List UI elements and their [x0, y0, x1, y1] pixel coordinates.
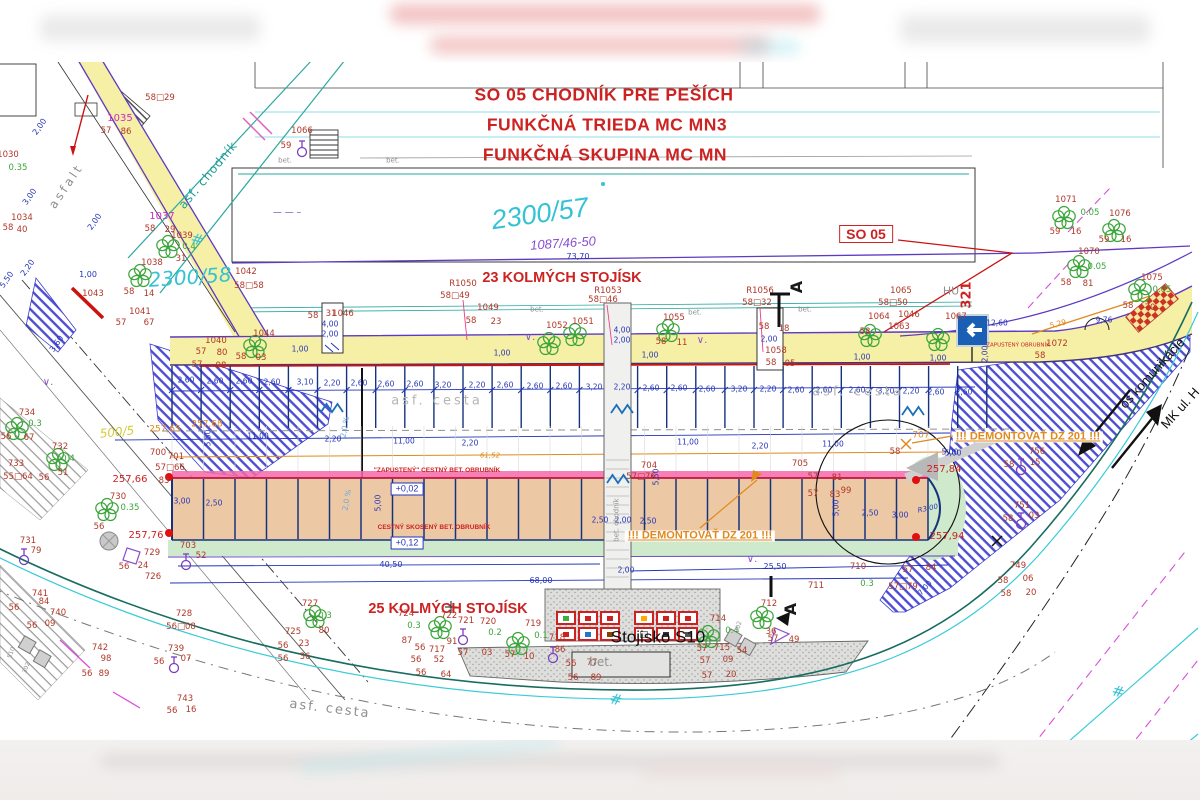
annotation-label: 56	[167, 707, 178, 716]
annotation-label: 11,00	[393, 437, 414, 445]
annotation-label: 81	[832, 474, 843, 483]
annotation-label: 500/5	[99, 424, 135, 440]
annotation-label: 11,00	[247, 432, 268, 440]
annotation-label: 257,68	[191, 421, 223, 430]
curb-note-bottom: CESTNÝ SKOSENÝ BET. OBRUBNÍK	[378, 525, 491, 532]
site-plan-drawing: SO 05 CHODNÍK PRE PEŠÍCH FUNKČNÁ TRIEDA …	[0, 0, 1200, 800]
annotation-label: 56	[82, 670, 93, 679]
annotation-label: 56	[27, 622, 38, 631]
annotation-label: 58	[998, 577, 1009, 586]
annotation-label: 11,00	[822, 440, 843, 448]
annotation-label: 56□08	[166, 623, 196, 632]
annotation-label: 751	[1014, 502, 1030, 511]
annotation-label: 726	[145, 573, 161, 582]
annotation-label: 10	[524, 653, 535, 662]
tree-icon	[751, 607, 773, 629]
annotation-label: 0.05	[1153, 286, 1172, 295]
annotation-label: 58	[1003, 515, 1014, 524]
annotation-label: 86	[555, 646, 566, 655]
level-box-bottom: +0,12	[391, 537, 424, 550]
annotation-label: 720	[480, 618, 496, 627]
annotation-label: 03	[482, 649, 493, 658]
annotation-label: 83	[159, 477, 170, 486]
annotation-label: 61,52	[480, 453, 500, 460]
annotation-label: 58	[308, 312, 319, 321]
annotation-label: 1,00	[292, 345, 309, 353]
annotation-label: 3,20	[586, 383, 603, 391]
annotation-label: 719	[525, 620, 541, 629]
annotation-label: 0.35	[121, 504, 140, 513]
annotation-label: bet.	[688, 310, 702, 317]
lamp-icon	[170, 657, 179, 673]
row-bottom-label: 25 KOLMÝCH STOJÍSK	[368, 602, 527, 617]
annotation-label: 257,65	[149, 426, 181, 435]
annotation-label: 2,20	[469, 381, 486, 389]
annotation-label: 1058	[765, 347, 787, 356]
annotation-label: 2,60	[207, 377, 224, 385]
annotation-label: 5,00	[832, 500, 840, 517]
annotation-label: 2,00	[618, 566, 635, 574]
annotation-label: 0.3	[860, 580, 874, 589]
annotation-label: 0.35	[9, 164, 28, 173]
row-top-label: 23 KOLMÝCH STOJÍSK	[482, 271, 641, 286]
annotation-label: 4,00	[322, 320, 339, 328]
annotation-label: 80	[319, 627, 330, 636]
annotation-label: 64	[441, 671, 452, 680]
annotation-label: 81	[1083, 280, 1094, 289]
annotation-label: 730	[110, 493, 126, 502]
title-line-2: FUNKČNÁ TRIEDA MC MN3	[487, 116, 727, 134]
annotation-label: 0.05	[1081, 209, 1100, 218]
annotation-label: 25,50	[764, 563, 787, 571]
lamp-icon	[182, 554, 191, 570]
annotation-label: 58	[860, 328, 871, 337]
annotation-label: 57	[702, 672, 713, 681]
annotation-label: 1038	[141, 259, 163, 268]
annotation-label: 1066	[291, 127, 313, 136]
annotation-label: 59	[281, 142, 292, 151]
annotation-label: 1034	[11, 214, 33, 223]
annotation-label: 1064	[868, 313, 890, 322]
annotation-label: R1056	[746, 287, 774, 296]
annotation-label: 89	[99, 670, 110, 679]
annotation-label: 87	[402, 637, 413, 646]
annotation-label: 711	[808, 582, 824, 591]
annotation-label: 67	[144, 319, 155, 328]
annotation-label: bet.	[589, 656, 613, 668]
annotation-label: 05	[785, 360, 796, 369]
annotation-label: ∨.	[525, 333, 536, 343]
annotation-label: 1071	[1055, 196, 1077, 205]
annotation-label: ∨.	[747, 555, 758, 565]
annotation-label: 56	[566, 660, 577, 669]
annotation-label: 717	[429, 646, 445, 655]
annotation-label: 20	[1026, 589, 1037, 598]
annotation-label: 712	[761, 600, 777, 609]
annotation-label: 57	[505, 651, 516, 660]
annotation-label: 56	[39, 474, 50, 483]
annotation-label: 57□76	[626, 473, 656, 482]
annotation-label: 58	[124, 288, 135, 297]
annotation-label: 49	[789, 636, 800, 645]
annotation-label: 733	[8, 460, 24, 469]
annotation-label: 5,50	[204, 430, 212, 447]
annotation-label: 1,00	[854, 353, 871, 361]
annotation-label: 11	[677, 339, 688, 348]
annotation-label: 57	[808, 490, 819, 499]
annotation-label: 12,60	[986, 319, 1007, 327]
annotation-label: 57	[101, 127, 112, 136]
annotation-label: 2,60	[956, 388, 973, 396]
annotation-label: 58□46	[588, 296, 618, 305]
annotation-label: 52	[196, 552, 207, 561]
annotation-label: 57	[458, 649, 469, 658]
annotation-label: 725	[285, 628, 301, 637]
annotation-label: 1063	[888, 323, 910, 332]
annotation-label: 2,60	[788, 386, 805, 394]
annotation-label: 257,94	[930, 532, 965, 542]
annotation-label: 51	[58, 469, 69, 478]
annotation-label: 59	[1050, 228, 1061, 237]
annotation-label: 1,00	[79, 271, 97, 279]
annotation-label: 07	[181, 655, 192, 664]
annotation-label: 58	[145, 225, 156, 234]
annotation-label: 1040	[205, 337, 227, 346]
annotation-label: 701	[168, 453, 184, 462]
annotation-label: 16	[186, 706, 197, 715]
annotation-label: bet.	[530, 307, 544, 314]
annotation-label: 0.3	[318, 612, 332, 621]
annotation-label: 80	[217, 349, 228, 358]
annotation-label: 2,50	[592, 516, 609, 524]
annotation-label: 24	[138, 562, 149, 571]
annotation-label: 1,00	[494, 349, 511, 357]
annotation-label: 2,60	[643, 384, 660, 392]
annotation-label: bet.	[798, 307, 812, 314]
annotation-label: 56	[278, 655, 289, 664]
annotation-label: 58	[3, 224, 14, 233]
annotation-label: ∨.	[697, 336, 708, 346]
tree-icon	[1053, 207, 1075, 229]
annotation-label: 734	[19, 409, 35, 418]
annotation-label: bet.	[278, 158, 292, 165]
annotation-label: 23	[299, 640, 310, 649]
annotation-label: 2,60	[497, 381, 514, 389]
annotation-label: 3,20	[731, 385, 748, 393]
annotation-label: 57	[116, 319, 127, 328]
lamp-icon	[459, 629, 468, 645]
annotation-label: 705	[792, 460, 808, 469]
annotation-label: 40,50	[380, 561, 403, 569]
annotation-label: 2,00	[614, 336, 631, 344]
annotation-label: 3,00	[892, 511, 909, 519]
annotation-label: 1,00	[642, 351, 659, 359]
annotation-label: 0.3	[407, 622, 421, 631]
annotation-label: 1052	[546, 322, 568, 331]
annotation-label: 1041	[129, 308, 151, 317]
annotation-label: 54	[737, 647, 748, 656]
annotation-label: A	[789, 281, 805, 293]
annotation-label: 2,00	[761, 335, 778, 343]
annotation-label: 2300/58	[148, 264, 232, 290]
annotation-label: 55□64	[3, 473, 33, 482]
annotation-label: — — –	[273, 209, 301, 218]
curb-note-top: "ZAPUSTENÝ" CESTNÝ BET. OBRUBNÍK	[374, 468, 500, 475]
annotation-label: 5,00	[374, 495, 382, 512]
annotation-label: 58	[1001, 590, 1012, 599]
annotation-label: 1043	[82, 290, 104, 299]
annotation-label: 1044	[253, 330, 275, 339]
annotation-label: 739	[168, 645, 184, 654]
red-point-icon	[912, 476, 920, 484]
annotation-label: 710	[850, 563, 866, 572]
annotation-label: 40	[17, 226, 28, 235]
annotation-label: 4,00	[614, 326, 631, 334]
annotation-label: 2,60	[527, 382, 544, 390]
annotation-label: 58	[890, 448, 901, 457]
annotation-label: 57	[903, 566, 914, 575]
annotation-label: 58□49	[440, 292, 470, 301]
annotation-label: 57	[196, 348, 207, 357]
annotation-label: 1067	[945, 313, 967, 322]
annotation-label: 58	[1035, 352, 1046, 361]
annotation-label: asf. cesta	[812, 386, 904, 399]
annotation-label: 57	[768, 635, 779, 644]
annotation-label: 56	[119, 563, 130, 572]
annotation-label: 11,00	[677, 438, 698, 446]
annotation-label: 707	[912, 432, 929, 441]
annotation-label: 2,20	[760, 385, 777, 393]
annotation-label: 700	[150, 449, 166, 458]
annotation-label: 56	[1, 433, 12, 442]
annotation-label: 58	[759, 323, 770, 332]
annotation-label: 56	[416, 669, 427, 678]
red-point-icon	[165, 529, 173, 537]
blue-hatch-left-small	[26, 278, 76, 352]
annotation-label: 742	[92, 644, 108, 653]
annotation-label: 57□79	[888, 583, 918, 592]
annotation-label: 58	[1004, 461, 1015, 470]
annotation-label: 58	[466, 317, 477, 326]
annotation-label: 52	[434, 656, 445, 665]
annotation-label: 2,20	[614, 383, 631, 391]
annotation-label: 2,00	[322, 330, 339, 338]
annotation-label: 03	[256, 354, 267, 363]
annotation-label: 743	[177, 695, 193, 704]
title-line-1: SO 05 CHODNÍK PRE PEŠÍCH	[475, 86, 734, 104]
annotation-label: 1030	[0, 151, 19, 160]
annotation-label: 36	[300, 653, 311, 662]
annotation-label: 56	[154, 658, 165, 667]
annotation-label: 15	[1030, 459, 1041, 468]
annotation-label: 56	[568, 674, 579, 683]
annotation-label: 2,60	[351, 379, 368, 387]
annotation-label: 2,20	[462, 439, 479, 447]
title-line-3: FUNKČNÁ SKUPINA MC MN	[483, 146, 727, 164]
stand-label: Stojisko S10	[611, 629, 706, 646]
annotation-label: 98	[101, 655, 112, 664]
annotation-label: 721	[458, 617, 474, 626]
demolish-note-2: !!! DEMONTOVAŤ DZ 201 !!!	[953, 432, 1103, 443]
annotation-label: 86	[121, 128, 132, 137]
annotation-label: 56	[415, 644, 426, 653]
annotation-label: 0.1	[534, 632, 548, 641]
annotation-label: 2,20	[324, 379, 341, 387]
annotation-label: 2,50	[640, 517, 657, 525]
annotation-label: 56	[411, 656, 422, 665]
annotation-label: 1070	[1078, 248, 1100, 257]
annotation-label: 09	[723, 656, 734, 665]
level-box-top: +0,02	[391, 483, 424, 496]
annotation-label: 2,20	[903, 387, 920, 395]
annotation-label: 731	[20, 537, 36, 546]
annotation-label: 756	[1029, 448, 1045, 457]
annotation-label: 06	[1023, 575, 1034, 584]
annotation-label: 84	[926, 564, 937, 573]
annotation-label: A	[783, 603, 799, 615]
annotation-label: 58	[1123, 302, 1134, 311]
annotation-label: 58□58	[234, 282, 264, 291]
annotation-label: 0.2	[488, 629, 502, 638]
annotation-label: 70	[1145, 304, 1156, 313]
annotation-label: asf. cesta	[391, 395, 483, 408]
annotation-label: bet.	[386, 158, 400, 165]
annotation-label: 2,60	[378, 380, 395, 388]
annotation-label: 03	[1029, 512, 1040, 521]
annotation-label: 704	[641, 462, 657, 471]
annotation-label: 257,84	[927, 465, 962, 475]
annotation-label: 1055	[663, 314, 685, 323]
annotation-label: bet. chodník	[614, 498, 621, 541]
annotation-label: 2,60	[236, 377, 253, 385]
annotation-label: 2,60	[178, 376, 195, 384]
annotation-label: 2,60	[928, 388, 945, 396]
annotation-label: 1065	[890, 287, 912, 296]
annotation-label: 1037	[149, 212, 174, 222]
annotation-label: 14	[144, 290, 155, 299]
parking-strip-lower	[168, 456, 966, 560]
annotation-label: 740	[50, 609, 66, 618]
annotation-label: 2,50	[206, 499, 223, 507]
annotation-label: R1050	[449, 280, 477, 289]
annotation-label: 9,76	[1096, 316, 1113, 324]
annotation-label: 1049	[477, 304, 499, 313]
blurred-top-strip	[0, 0, 1200, 62]
annotation-label: 1,00	[930, 354, 947, 362]
annotation-label: 1076	[1109, 210, 1131, 219]
annotation-label: HU	[943, 286, 959, 297]
annotation-label: 59	[1099, 236, 1110, 245]
annotation-label: 89	[591, 674, 602, 683]
tree-icon	[96, 499, 118, 521]
annotation-label: 321	[961, 281, 974, 308]
annotation-label: 56	[9, 604, 20, 613]
lamp-icon	[298, 141, 307, 157]
annotation-label: 16	[1121, 236, 1132, 245]
annotation-label: 732	[52, 443, 68, 452]
annotation-label: 09	[45, 620, 56, 629]
annotation-label: 718	[549, 634, 565, 643]
annotation-label: 729	[144, 549, 160, 558]
annotation-label: 703	[180, 542, 196, 551]
annotation-label: 58	[236, 353, 247, 362]
annotation-label: 98	[216, 362, 227, 371]
annotation-label: 2,60	[671, 384, 688, 392]
annotation-label: 99	[841, 487, 852, 496]
annotation-label: 31	[176, 255, 187, 264]
annotation-label: ZAPUSTENÝ OBRUBNÍK	[986, 343, 1050, 349]
annotation-label: 2,20	[752, 442, 769, 450]
annotation-label: 68,00	[530, 577, 553, 585]
annotation-label: 3,20	[435, 381, 452, 389]
annotation-label: 56	[94, 523, 105, 532]
annotation-label: 3,10	[297, 378, 314, 386]
stairs-icon	[310, 130, 338, 158]
annotation-label: 3,00	[174, 497, 191, 505]
annotation-label: 1075	[1141, 274, 1163, 283]
annotation-label: 2,60	[407, 380, 424, 388]
so05-box: SO 05	[839, 225, 893, 243]
annotation-label: 58	[656, 338, 667, 347]
zigzag-mark	[902, 407, 924, 415]
demolish-note-1: !!! DEMONTOVAŤ DZ 201 !!!	[625, 531, 775, 542]
annotation-label: 31	[326, 310, 337, 319]
annotation-label: 83	[830, 491, 841, 500]
annotation-label: 57	[808, 473, 819, 482]
annotation-label: 23	[491, 318, 502, 327]
annotation-label: 2,60	[699, 385, 716, 393]
annotation-label: 57□66	[155, 464, 185, 473]
blurred-bottom-strip	[0, 740, 1200, 800]
annotation-label: 0.4	[61, 455, 75, 464]
annotation-label: 1042	[235, 268, 257, 277]
annotation-label: 56	[278, 642, 289, 651]
annotation-label: 16	[1071, 228, 1082, 237]
annotation-label: 84	[39, 598, 50, 607]
annotation-label: 73,70	[567, 253, 590, 261]
annotation-label: 0.05	[1088, 263, 1107, 272]
annotation-label: 58□50	[878, 299, 908, 308]
annotation-label: 0.3	[28, 420, 42, 429]
annotation-label: 714	[710, 615, 726, 624]
annotation-label: 20	[726, 671, 737, 680]
annotation-label: 67	[24, 434, 35, 443]
annotation-label: 727	[302, 600, 318, 609]
annotation-label: 58□32	[742, 299, 772, 308]
annotation-label: 2,60	[264, 378, 281, 386]
annotation-label: 1046	[898, 311, 920, 320]
annotation-label: 58	[1061, 279, 1072, 288]
annotation-label: 749	[1010, 562, 1026, 571]
annotation-label: 18	[779, 325, 790, 334]
annotation-label: 5,00	[945, 449, 962, 457]
annotation-label: 257,76	[129, 531, 164, 541]
annotation-label: 2,60	[556, 382, 573, 390]
annotation-label: ∨.	[43, 378, 54, 388]
annotation-label: 2,50	[862, 509, 879, 517]
annotation-label: 57	[700, 657, 711, 666]
annotation-label: 58□29	[145, 94, 175, 103]
annotation-label: 79	[31, 547, 42, 556]
annotation-label: 58	[766, 359, 777, 368]
annotation-label: 1035	[107, 114, 132, 124]
annotation-label: 91	[447, 638, 458, 647]
annotation-label: 1051	[572, 318, 594, 327]
annotation-label: 715	[714, 644, 730, 653]
red-point-icon	[912, 533, 920, 541]
annotation-label: 57	[192, 361, 203, 370]
annotation-label: 257,66	[113, 475, 148, 485]
